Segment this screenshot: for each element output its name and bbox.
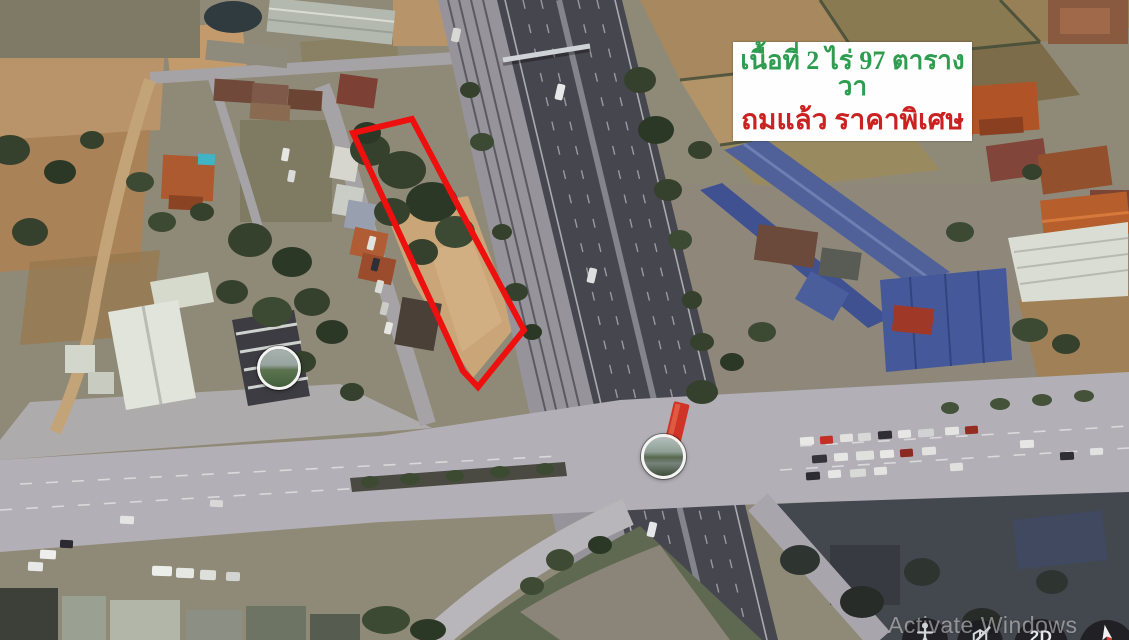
compass-icon: [1090, 621, 1124, 640]
photo-marker[interactable]: [257, 346, 301, 390]
listing-info-box: เนื้อที่ 2 ไร่ 97 ตารางวา ถมแล้ว ราคาพิเ…: [733, 42, 972, 141]
3d-buildings-off-icon: [965, 622, 995, 640]
photo-thumbnail: [260, 349, 298, 387]
2d-view-label: 2D: [1030, 627, 1053, 640]
photo-thumbnail: [644, 437, 683, 476]
listing-area-text: เนื้อที่ 2 ไร่ 97 ตารางวา: [733, 48, 972, 100]
pegman-icon: [910, 620, 940, 640]
listing-price-text: ถมแล้ว ราคาพิเศษ: [741, 107, 964, 135]
google-earth-viewport[interactable]: เนื้อที่ 2 ไร่ 97 ตารางวา ถมแล้ว ราคาพิเ…: [0, 0, 1129, 640]
photo-marker[interactable]: [641, 434, 686, 479]
